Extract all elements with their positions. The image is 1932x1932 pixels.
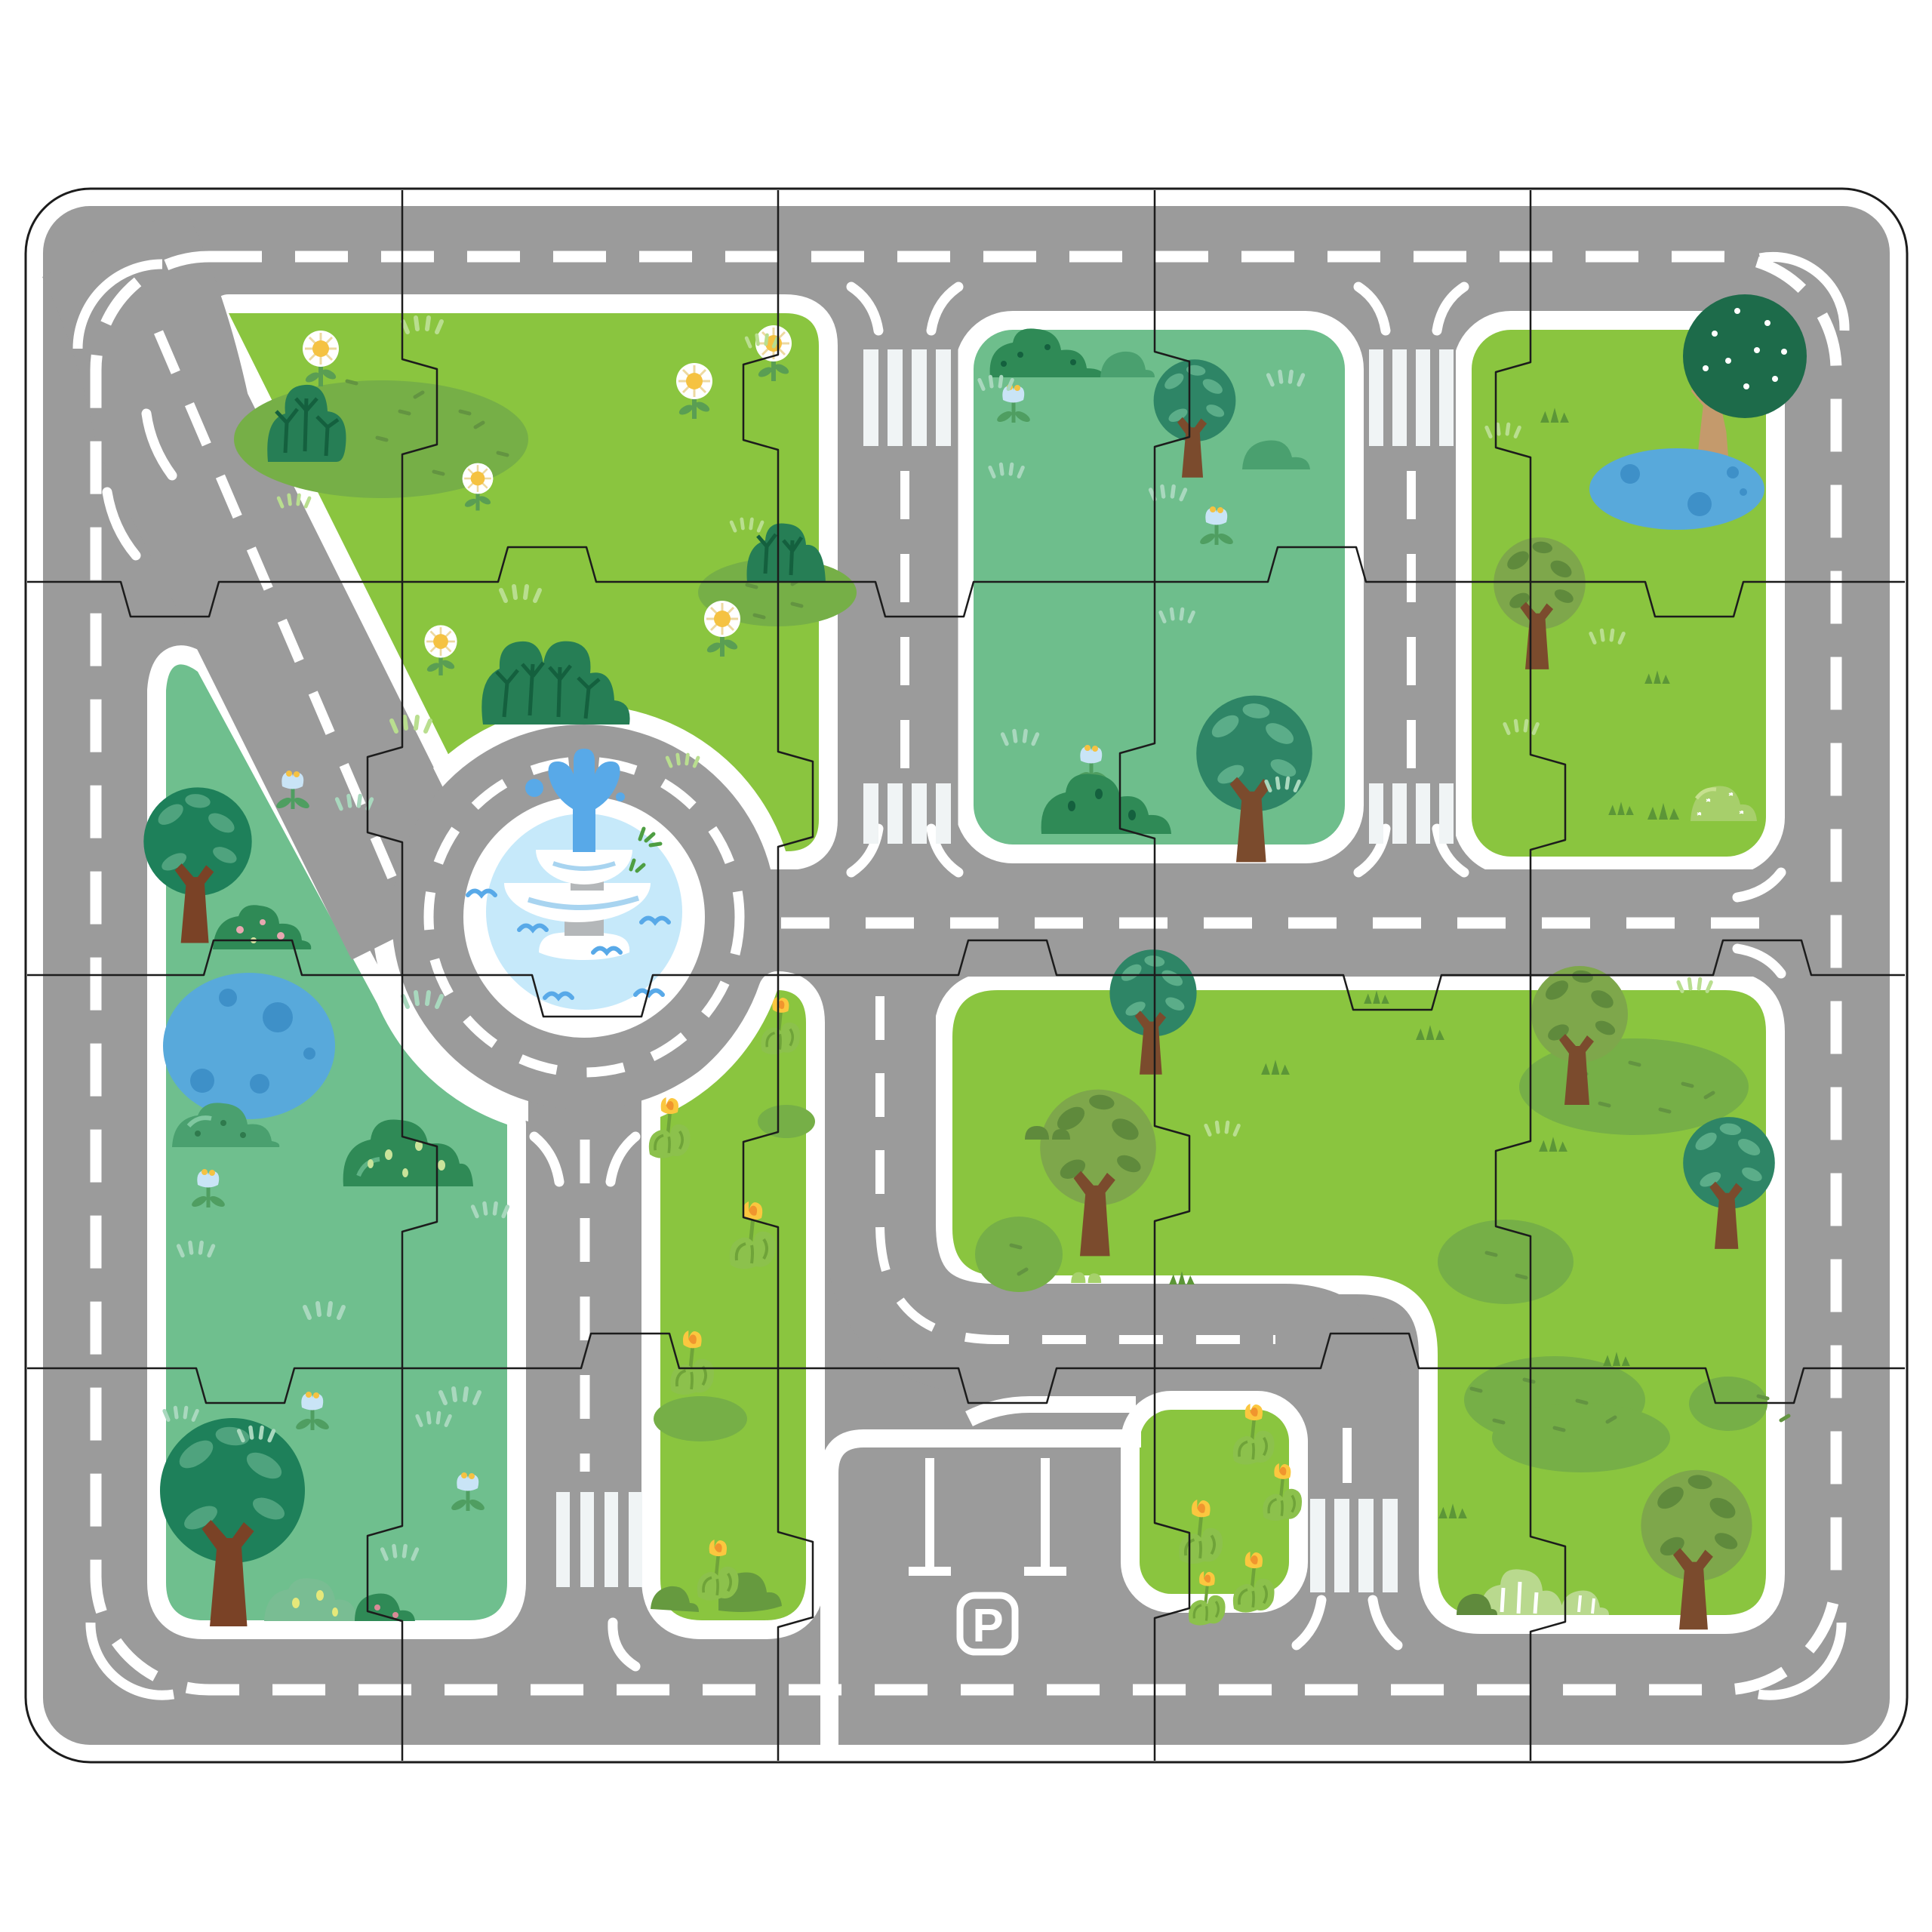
svg-text:P: P bbox=[972, 1600, 1003, 1652]
